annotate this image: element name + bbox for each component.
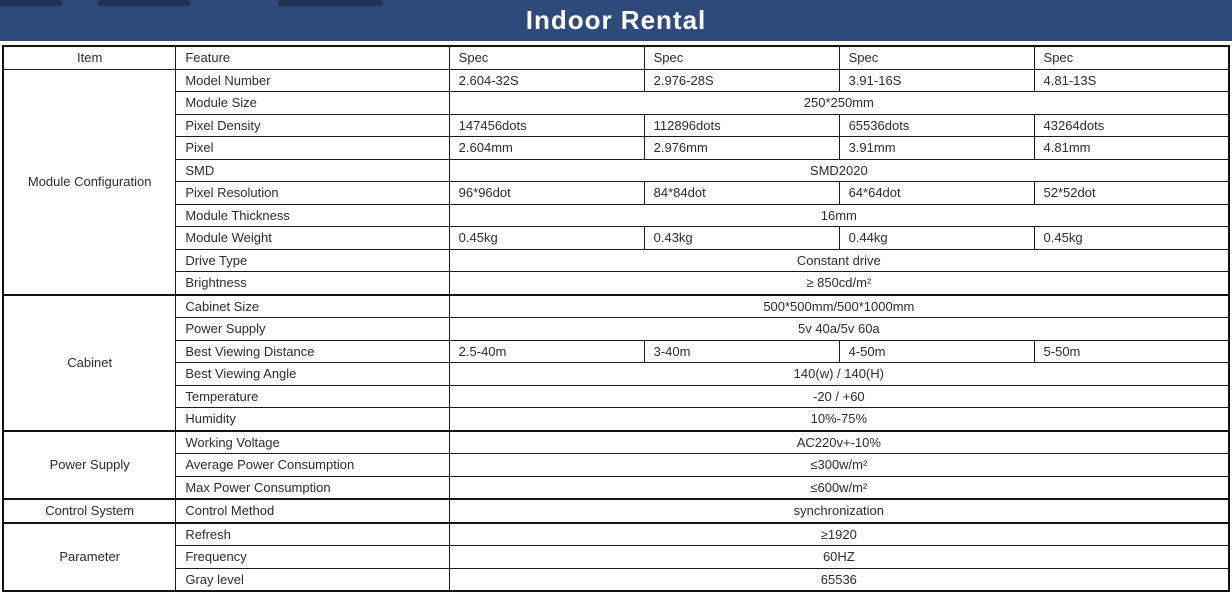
column-header: Spec (1034, 46, 1229, 69)
spec-span-cell: 10%-75% (449, 408, 1229, 431)
spec-value-cell: 3-40m (644, 340, 839, 363)
spec-value-cell: 0.43kg (644, 227, 839, 250)
spec-value-cell: 4-50m (839, 340, 1034, 363)
spec-value-cell: 2.604-32S (449, 69, 644, 92)
spec-value-cell: 43264dots (1034, 114, 1229, 137)
column-header: Spec (449, 46, 644, 69)
table-row: Gray level65536 (3, 568, 1229, 591)
header-row: ItemFeatureSpecSpecSpecSpec (3, 46, 1229, 69)
table-row: Humidity10%-75% (3, 408, 1229, 431)
spec-span-cell: 65536 (449, 568, 1229, 591)
table-row: Average Power Consumption≤300w/m² (3, 454, 1229, 477)
feature-cell: Max Power Consumption (176, 476, 449, 499)
spec-value-cell: 2.604mm (449, 137, 644, 160)
spec-value-cell: 3.91-16S (839, 69, 1034, 92)
item-group-cell: Control System (3, 499, 176, 523)
spec-span-cell: 140(w) / 140(H) (449, 363, 1229, 386)
spec-span-cell: 250*250mm (449, 92, 1229, 115)
table-row: Best Viewing Distance2.5-40m3-40m4-50m5-… (3, 340, 1229, 363)
column-header: Spec (839, 46, 1034, 69)
spec-span-cell: 500*500mm/500*1000mm (449, 295, 1229, 318)
feature-cell: Model Number (176, 69, 449, 92)
feature-cell: Temperature (176, 385, 449, 408)
table-row: Max Power Consumption≤600w/m² (3, 476, 1229, 499)
table-row: Best Viewing Angle140(w) / 140(H) (3, 363, 1229, 386)
feature-cell: Drive Type (176, 249, 449, 272)
feature-cell: Power Supply (176, 318, 449, 341)
banner-artifact (0, 0, 62, 6)
feature-cell: Module Weight (176, 227, 449, 250)
spec-span-cell: ≥ 850cd/m² (449, 272, 1229, 295)
feature-cell: Control Method (176, 499, 449, 523)
table-row: Frequency60HZ (3, 546, 1229, 569)
item-group-cell: Module Configuration (3, 69, 176, 295)
spec-value-cell: 96*96dot (449, 182, 644, 205)
item-group-cell: Cabinet (3, 295, 176, 431)
banner-artifact (98, 0, 190, 6)
spec-value-cell: 147456dots (449, 114, 644, 137)
spec-value-cell: 5-50m (1034, 340, 1229, 363)
spec-value-cell: 4.81mm (1034, 137, 1229, 160)
table-body: Module ConfigurationModel Number2.604-32… (3, 69, 1229, 591)
table-row: SMDSMD2020 (3, 159, 1229, 182)
table-header: ItemFeatureSpecSpecSpecSpec (3, 46, 1229, 69)
spec-span-cell: 16mm (449, 204, 1229, 227)
feature-cell: Frequency (176, 546, 449, 569)
spec-value-cell: 3.91mm (839, 137, 1034, 160)
column-header: Spec (644, 46, 839, 69)
banner-artifact (278, 0, 383, 6)
feature-cell: SMD (176, 159, 449, 182)
spec-value-cell: 65536dots (839, 114, 1034, 137)
feature-cell: Cabinet Size (176, 295, 449, 318)
table-row: Drive TypeConstant drive (3, 249, 1229, 272)
table-row: Module Weight0.45kg0.43kg0.44kg0.45kg (3, 227, 1229, 250)
spec-value-cell: 2.976mm (644, 137, 839, 160)
table-row: Control SystemControl Methodsynchronizat… (3, 499, 1229, 523)
feature-cell: Pixel Density (176, 114, 449, 137)
spec-value-cell: 64*64dot (839, 182, 1034, 205)
feature-cell: Best Viewing Distance (176, 340, 449, 363)
spec-span-cell: SMD2020 (449, 159, 1229, 182)
spec-span-cell: ≤600w/m² (449, 476, 1229, 499)
spec-value-cell: 52*52dot (1034, 182, 1229, 205)
feature-cell: Working Voltage (176, 431, 449, 454)
spec-value-cell: 2.976-28S (644, 69, 839, 92)
feature-cell: Average Power Consumption (176, 454, 449, 477)
spec-span-cell: ≥1920 (449, 523, 1229, 546)
table-row: Module ConfigurationModel Number2.604-32… (3, 69, 1229, 92)
spec-value-cell: 0.45kg (1034, 227, 1229, 250)
spec-span-cell: 5v 40a/5v 60a (449, 318, 1229, 341)
table-row: Module Thickness16mm (3, 204, 1229, 227)
spec-value-cell: 0.45kg (449, 227, 644, 250)
spec-span-cell: 60HZ (449, 546, 1229, 569)
table-row: Temperature-20 / +60 (3, 385, 1229, 408)
table-row: CabinetCabinet Size500*500mm/500*1000mm (3, 295, 1229, 318)
feature-cell: Module Size (176, 92, 449, 115)
feature-cell: Module Thickness (176, 204, 449, 227)
spec-span-cell: ≤300w/m² (449, 454, 1229, 477)
title-banner: Indoor Rental (0, 0, 1232, 41)
feature-cell: Pixel Resolution (176, 182, 449, 205)
item-group-cell: Parameter (3, 523, 176, 592)
feature-cell: Humidity (176, 408, 449, 431)
feature-cell: Gray level (176, 568, 449, 591)
table-row: Pixel Resolution96*96dot84*84dot64*64dot… (3, 182, 1229, 205)
table-row: Pixel Density147456dots112896dots65536do… (3, 114, 1229, 137)
spec-value-cell: 84*84dot (644, 182, 839, 205)
table-row: Power SupplyWorking VoltageAC220v+-10% (3, 431, 1229, 454)
column-header: Feature (176, 46, 449, 69)
spec-span-cell: Constant drive (449, 249, 1229, 272)
spec-table: ItemFeatureSpecSpecSpecSpec Module Confi… (2, 45, 1230, 592)
spec-value-cell: 4.81-13S (1034, 69, 1229, 92)
spec-span-cell: AC220v+-10% (449, 431, 1229, 454)
item-group-cell: Power Supply (3, 431, 176, 500)
table-row: Brightness≥ 850cd/m² (3, 272, 1229, 295)
feature-cell: Best Viewing Angle (176, 363, 449, 386)
table-row: Power Supply5v 40a/5v 60a (3, 318, 1229, 341)
page-title: Indoor Rental (526, 5, 707, 36)
table-row: ParameterRefresh≥1920 (3, 523, 1229, 546)
spec-value-cell: 112896dots (644, 114, 839, 137)
feature-cell: Brightness (176, 272, 449, 295)
feature-cell: Refresh (176, 523, 449, 546)
spec-sheet: Indoor Rental ItemFeatureSpecSpecSpecSpe… (0, 0, 1232, 595)
feature-cell: Pixel (176, 137, 449, 160)
spec-span-cell: -20 / +60 (449, 385, 1229, 408)
spec-span-cell: synchronization (449, 499, 1229, 523)
column-header: Item (3, 46, 176, 69)
spec-value-cell: 2.5-40m (449, 340, 644, 363)
spec-value-cell: 0.44kg (839, 227, 1034, 250)
table-row: Pixel2.604mm2.976mm3.91mm4.81mm (3, 137, 1229, 160)
table-row: Module Size250*250mm (3, 92, 1229, 115)
